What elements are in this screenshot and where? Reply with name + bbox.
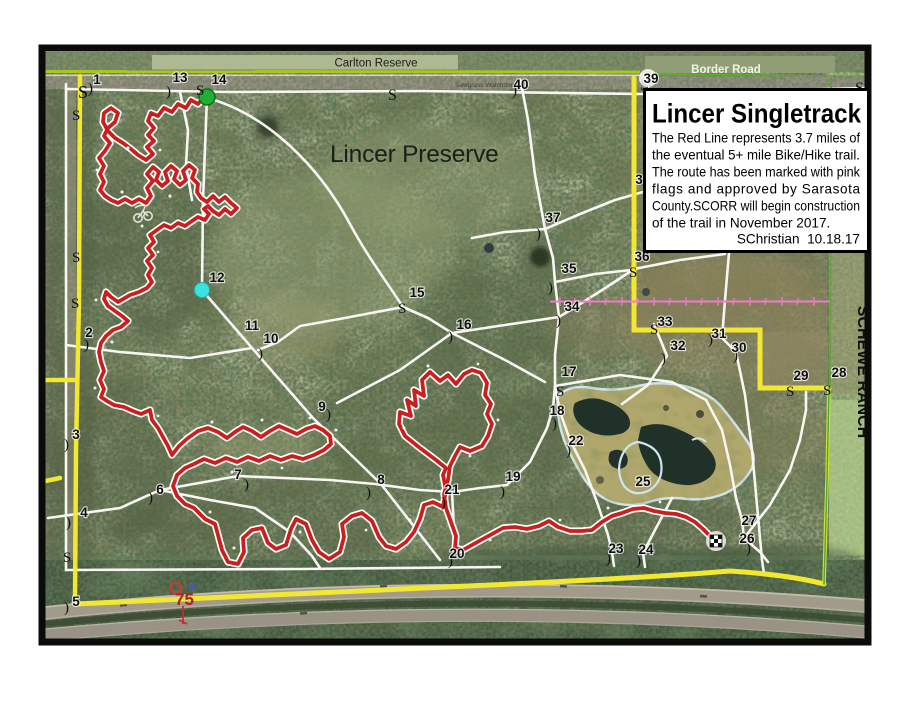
svg-text:29: 29: [793, 368, 808, 383]
svg-text:): ): [661, 351, 666, 367]
svg-text:S: S: [78, 82, 88, 102]
svg-text:3: 3: [72, 427, 80, 442]
svg-text:County.SCORR will begin constr: County.SCORR will begin construction: [652, 199, 860, 214]
svg-text:22: 22: [568, 433, 583, 448]
svg-text:S: S: [786, 384, 794, 400]
svg-text:39: 39: [643, 71, 658, 86]
svg-text:S: S: [556, 384, 564, 400]
svg-text:14: 14: [211, 72, 227, 87]
svg-text:25: 25: [635, 474, 651, 489]
svg-text:2: 2: [85, 325, 93, 340]
svg-text:): ): [366, 485, 371, 501]
svg-text:13: 13: [172, 70, 188, 85]
svg-text:The route has been marked with: The route has been marked with pink: [652, 165, 860, 180]
svg-text:): ): [441, 495, 446, 511]
svg-text:): ): [548, 280, 553, 296]
svg-text:S: S: [71, 296, 79, 312]
svg-text:16: 16: [456, 317, 472, 332]
svg-text:5: 5: [72, 594, 80, 609]
svg-text:S: S: [63, 550, 71, 566]
svg-text:12: 12: [209, 270, 224, 285]
svg-text:8: 8: [377, 472, 385, 487]
svg-text:19: 19: [505, 469, 520, 484]
svg-text:): ): [64, 437, 69, 453]
svg-text:26: 26: [739, 531, 755, 546]
svg-text:): ): [556, 313, 561, 329]
svg-text:30: 30: [731, 340, 746, 355]
svg-text:): ): [166, 84, 171, 100]
svg-text:31: 31: [711, 326, 727, 341]
svg-text:34: 34: [564, 299, 580, 314]
svg-text:10: 10: [263, 331, 278, 346]
svg-text:): ): [326, 407, 331, 423]
svg-text:S: S: [388, 87, 397, 104]
svg-text:18: 18: [549, 403, 565, 418]
svg-text:): ): [66, 515, 71, 531]
svg-text:27: 27: [741, 513, 756, 528]
svg-text:21: 21: [444, 482, 460, 497]
svg-text:9: 9: [318, 399, 326, 414]
svg-text:Carlton Reserve: Carlton Reserve: [334, 58, 417, 70]
svg-text:): ): [258, 346, 263, 362]
svg-text:28: 28: [831, 365, 847, 380]
svg-text:): ): [448, 329, 453, 345]
svg-text:Lincer Singletrack: Lincer Singletrack: [652, 99, 861, 129]
svg-text:): ): [148, 490, 153, 506]
svg-text:S: S: [196, 83, 204, 99]
svg-text:S: S: [398, 301, 406, 317]
svg-text:SChristian 10.18.17: SChristian 10.18.17: [737, 232, 860, 247]
svg-text:24: 24: [638, 542, 654, 557]
svg-text:75: 75: [175, 590, 194, 609]
svg-text:Border Road: Border Road: [691, 64, 761, 76]
svg-text:flags and approved by Sarasota: flags and approved by Sarasota: [652, 182, 860, 197]
svg-text:S: S: [72, 108, 80, 124]
svg-text:37: 37: [545, 210, 560, 225]
svg-text:15: 15: [409, 285, 425, 300]
svg-text:): ): [536, 226, 541, 242]
svg-text:40: 40: [513, 77, 528, 92]
svg-text:of the trail in November 2017.: of the trail in November 2017.: [652, 216, 830, 231]
svg-text:): ): [552, 416, 557, 432]
svg-text:S: S: [629, 265, 637, 281]
svg-text:33: 33: [657, 314, 673, 329]
svg-text:): ): [244, 477, 249, 493]
svg-text:32: 32: [670, 338, 685, 353]
svg-text:35: 35: [561, 261, 577, 276]
svg-text:): ): [64, 600, 69, 616]
svg-text:S: S: [823, 383, 831, 399]
svg-text:7: 7: [234, 467, 242, 482]
svg-text:20: 20: [449, 546, 464, 561]
svg-text:the eventual 5+ mile Bike/Hike: the eventual 5+ mile Bike/Hike trail.: [652, 148, 860, 163]
svg-text:S: S: [72, 250, 80, 266]
svg-text:4: 4: [80, 505, 88, 520]
svg-text:): ): [500, 484, 505, 500]
svg-text:11: 11: [245, 318, 260, 333]
svg-text:23: 23: [608, 541, 624, 556]
svg-text:The Red Line represents 3.7 mi: The Red Line represents 3.7 miles of: [652, 131, 860, 146]
svg-text:Lincer Preserve: Lincer Preserve: [330, 141, 499, 168]
svg-text:6: 6: [156, 482, 164, 497]
svg-text:1: 1: [93, 72, 101, 87]
svg-text:17: 17: [561, 364, 576, 379]
